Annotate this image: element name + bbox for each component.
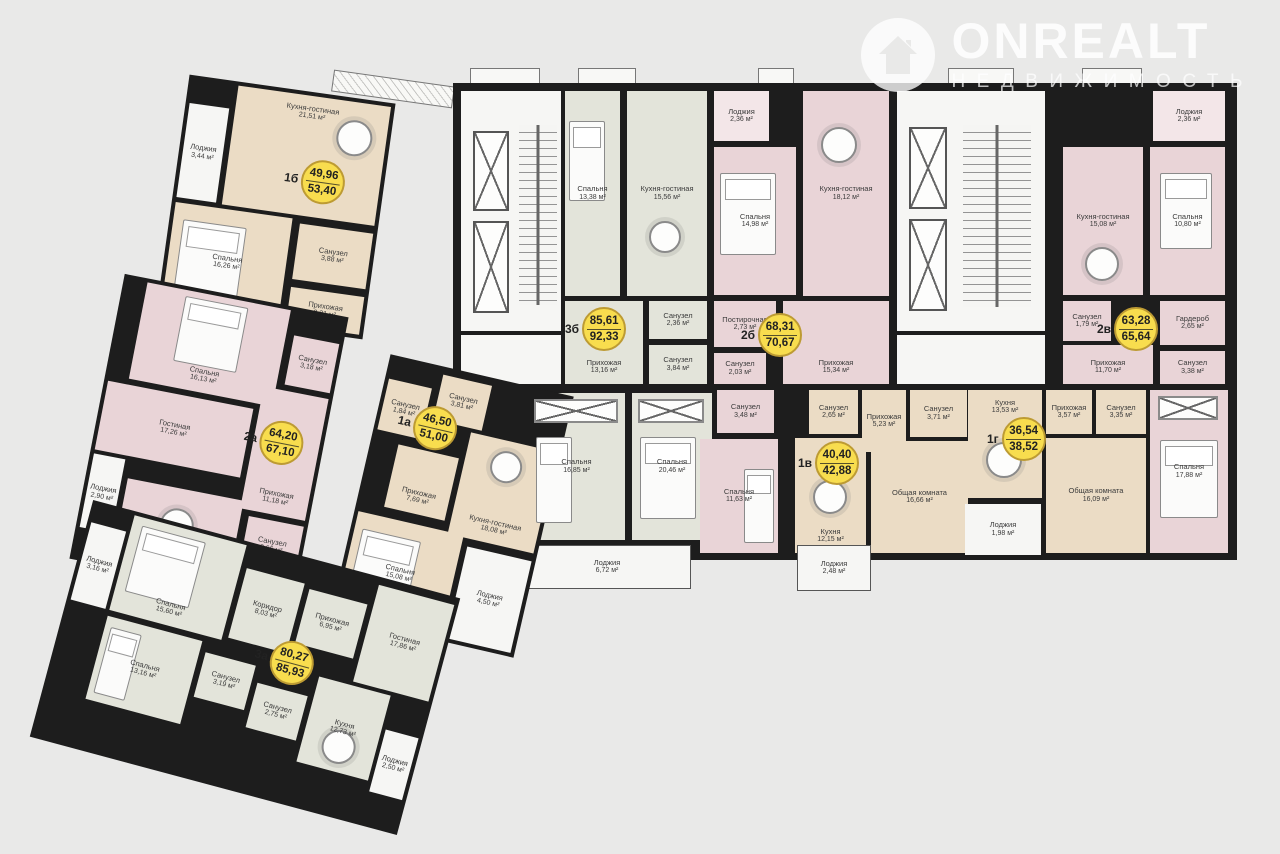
bed — [640, 437, 696, 519]
dining-table — [1085, 247, 1119, 281]
elevator-shaft-icon — [473, 131, 509, 211]
room-bathroom: Санузел2,36 м² — [649, 301, 707, 339]
wardrobe — [1158, 396, 1218, 420]
wardrobe — [638, 399, 704, 423]
room-bathroom: Санузел3,18 м² — [285, 335, 340, 393]
room-kitchen-living: Кухня-гостиная15,56 м² — [627, 91, 707, 296]
dining-table — [334, 118, 375, 159]
watermark: ONREALT НЕДВИЖИМОСТЬ — [861, 16, 1254, 93]
room-kitchen-living: Кухня-гостиная18,12 м² — [803, 91, 889, 296]
bed — [536, 437, 572, 523]
building-main-block-lower: Спальня16,85 м² Спальня20,46 м² Санузел3… — [513, 385, 1237, 560]
stair-core — [897, 91, 1045, 331]
room-bedroom: Спальня13,16 м² — [85, 616, 202, 724]
area-badge-1g: 1г 36,5438,52 — [987, 417, 1046, 461]
room-kitchen-living: Кухня-гостиная15,08 м² — [1063, 147, 1143, 295]
dining-table — [487, 448, 525, 486]
room-bathroom: Санузел3,84 м² — [649, 345, 707, 384]
house-icon — [875, 32, 921, 78]
room-common-room: Общая комната16,09 м² — [1046, 438, 1146, 553]
area-badge-3b: 3б 85,6192,33 — [565, 307, 626, 351]
room-hallway: Прихожая3,57 м² — [1046, 390, 1092, 434]
room-common-room: Общая комната16,66 м² — [871, 441, 968, 553]
area-badge-1v: 1в 40,4042,88 — [798, 441, 859, 485]
wardrobe — [534, 399, 618, 423]
room-bedroom: Спальня13,38 м² — [565, 91, 620, 296]
room-bathroom: Санузел3,38 м² — [1160, 351, 1225, 384]
room-loggia: Лоджия2,48 м² — [797, 545, 871, 591]
dining-table — [813, 480, 847, 514]
room-bedroom: Спальня14,98 м² — [714, 147, 796, 295]
area-badge-2b: 2б 68,3170,67 — [741, 313, 802, 357]
room-bathroom: Санузел3,88 м² — [292, 223, 373, 289]
room-bedroom: Спальня11,63 м² — [700, 439, 778, 553]
room-bathroom: Санузел2,75 м² — [246, 683, 308, 741]
bed — [125, 526, 206, 609]
area-badge-2v: 2в 63,2865,64 — [1097, 307, 1158, 351]
stairs-icon — [963, 125, 1031, 307]
room-bathroom: Санузел3,35 м² — [1096, 390, 1146, 434]
bed — [744, 469, 774, 543]
room-kitchen-living: Кухня-гостиная21,51 м² — [222, 86, 391, 226]
stairs-icon — [519, 125, 557, 305]
room-bedroom: Спальня10,80 м² — [1150, 147, 1225, 295]
room-wardrobe: Гардероб2,65 м² — [1160, 301, 1225, 345]
room-loggia: Лоджия2,36 м² — [1153, 91, 1225, 141]
stair-core — [461, 91, 561, 331]
room-loggia: Лоджия2,36 м² — [714, 91, 769, 141]
room-bathroom: Санузел3,71 м² — [910, 390, 967, 437]
room-loggia: Лоджия3,44 м² — [176, 103, 229, 203]
room-loggia: Лоджия1,98 м² — [965, 504, 1041, 555]
bed — [173, 296, 248, 373]
watermark-brand: ONREALT — [951, 16, 1210, 66]
room-loggia: Лоджия6,72 м² — [523, 545, 691, 589]
room-bathroom: Санузел2,65 м² — [809, 390, 858, 434]
elevator-shaft-icon — [909, 127, 947, 209]
room-bathroom: Санузел3,19 м² — [194, 652, 256, 710]
room-bedroom: Спальня16,85 м² — [528, 393, 625, 540]
onrealt-logo-icon — [861, 18, 935, 92]
area-badge-1b: 1б 49,9653,40 — [281, 155, 348, 207]
dining-table — [821, 127, 857, 163]
room-bathroom: Санузел3,48 м² — [717, 390, 774, 433]
room-bedroom: Спальня17,88 м² — [1150, 390, 1228, 553]
room-living: Гостиная17,86 м² — [353, 585, 454, 702]
room-bathroom: Санузел2,03 м² — [714, 353, 766, 384]
building-main-block-upper: Спальня13,38 м² Кухня-гостиная15,56 м² С… — [453, 83, 1237, 388]
elevator-shaft-icon — [473, 221, 509, 313]
elevator-shaft-icon — [909, 219, 947, 311]
watermark-subtitle: НЕДВИЖИМОСТЬ — [951, 71, 1254, 93]
floor-plan-canvas: ONREALT НЕДВИЖИМОСТЬ Спальня13,38 м² Кух… — [0, 0, 1280, 854]
vestibule — [897, 335, 1045, 384]
room-hallway: Прихожая7,69 м² — [384, 444, 459, 520]
dining-table — [649, 221, 681, 253]
